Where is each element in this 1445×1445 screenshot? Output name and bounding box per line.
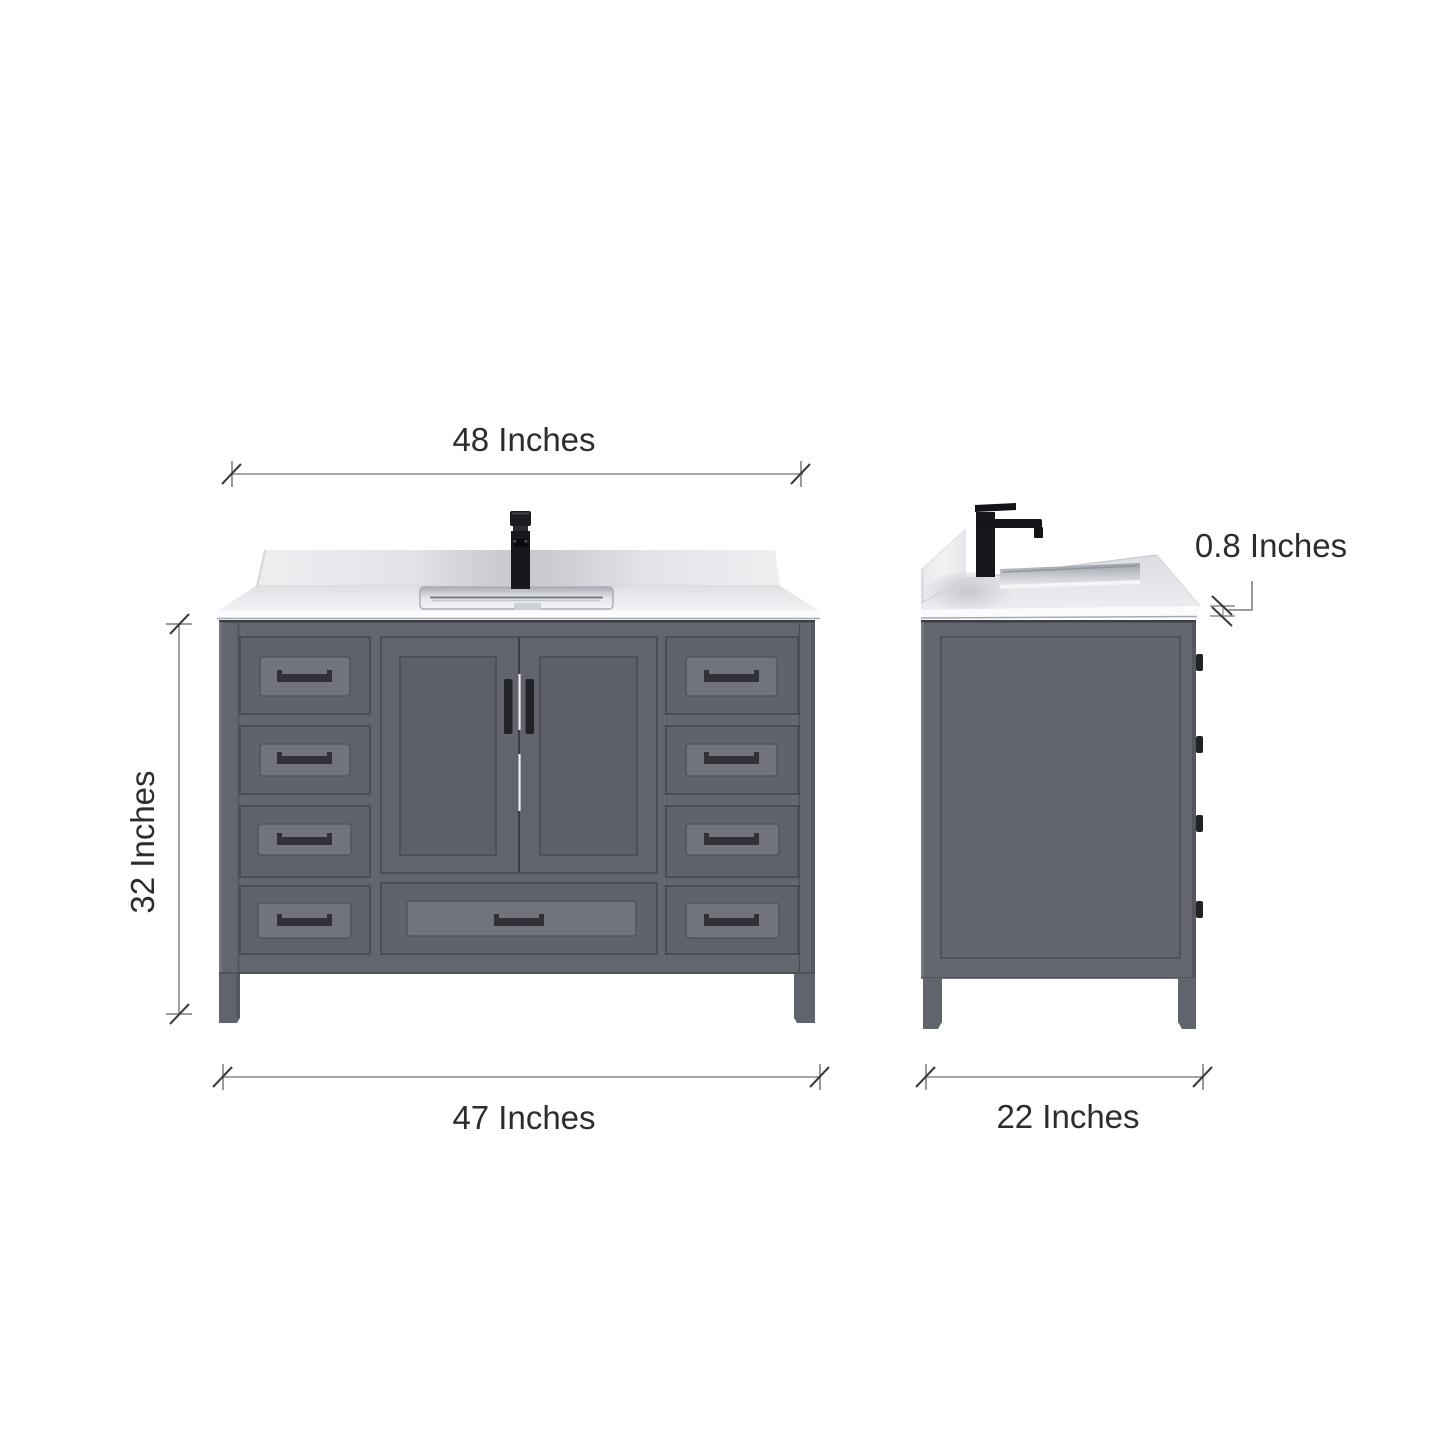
svg-text:0.8 Inches: 0.8 Inches [1195,527,1347,564]
svg-text:22 Inches: 22 Inches [996,1098,1139,1135]
svg-text:48 Inches: 48 Inches [452,421,595,458]
svg-text:32 Inches: 32 Inches [124,770,161,913]
svg-text:47 Inches: 47 Inches [452,1099,595,1136]
